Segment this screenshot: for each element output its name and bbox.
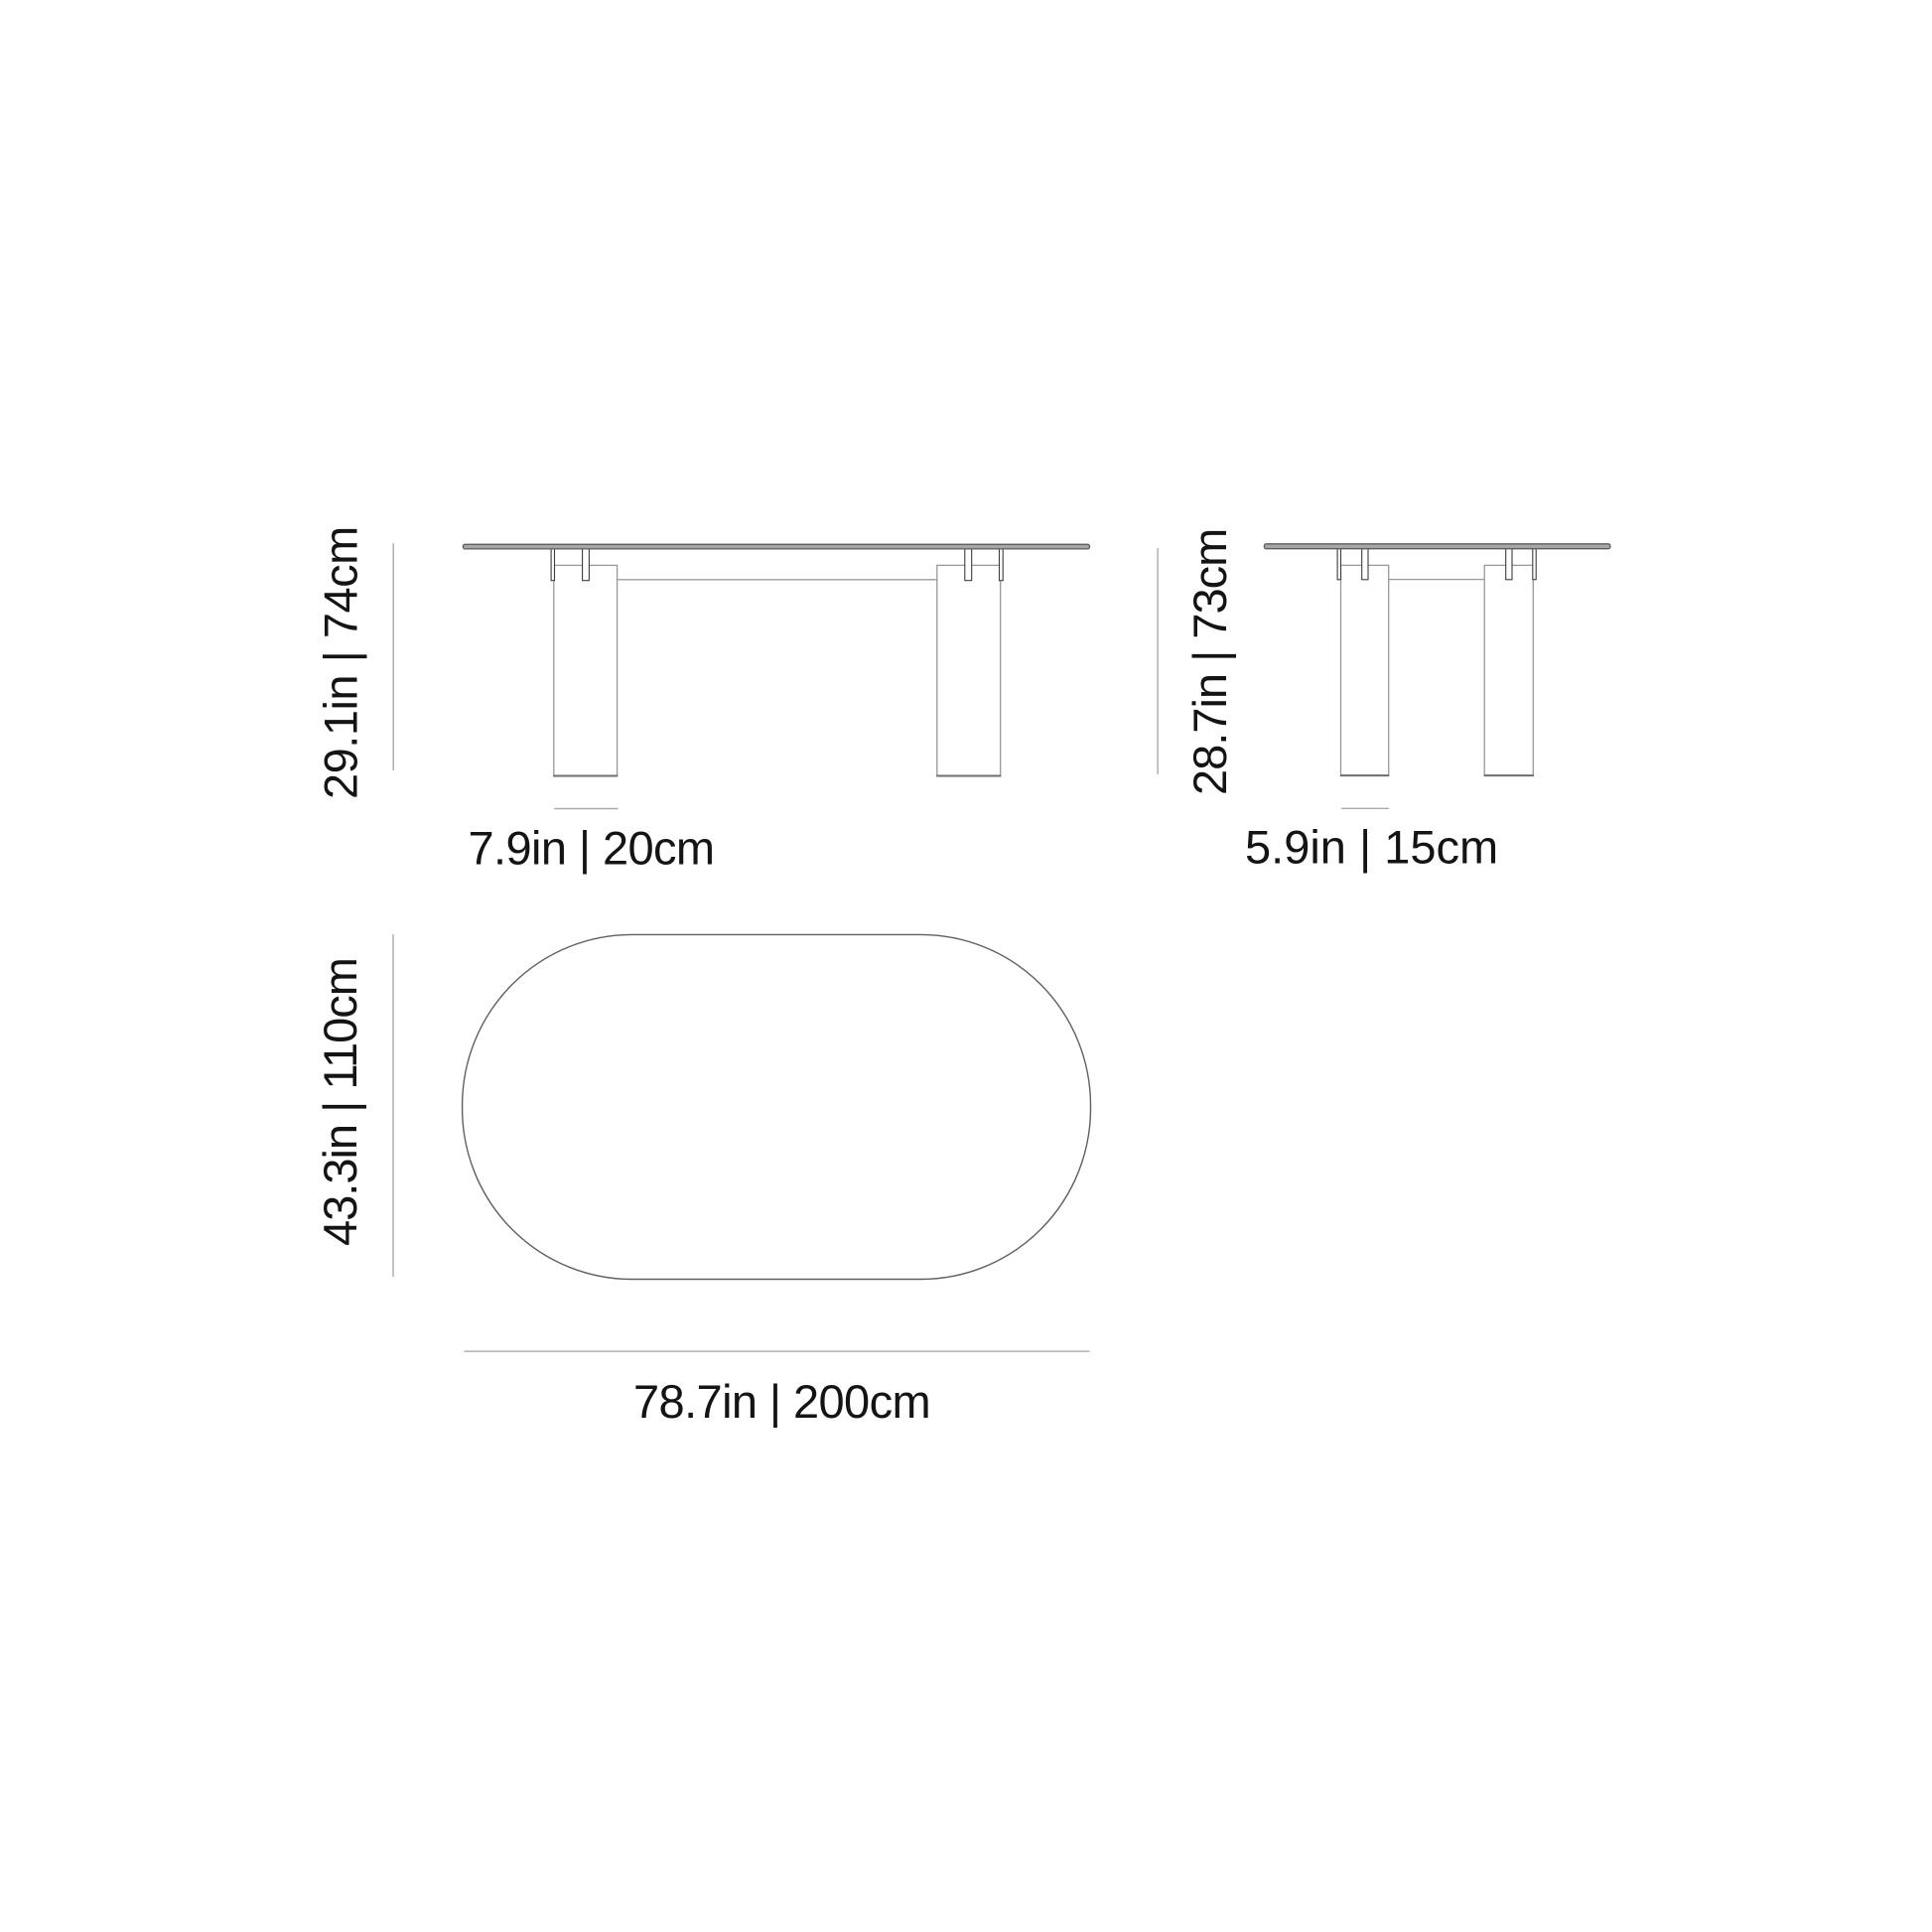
svg-text:28.7in | 73cm: 28.7in | 73cm bbox=[1183, 529, 1236, 795]
svg-text:29.1in | 74cm: 29.1in | 74cm bbox=[315, 526, 367, 799]
svg-text:43.3in | 110cm: 43.3in | 110cm bbox=[314, 958, 366, 1246]
svg-text:78.7in | 200cm: 78.7in | 200cm bbox=[633, 1375, 930, 1428]
svg-text:5.9in | 15cm: 5.9in | 15cm bbox=[1245, 821, 1498, 874]
svg-text:7.9in | 20cm: 7.9in | 20cm bbox=[469, 821, 715, 874]
